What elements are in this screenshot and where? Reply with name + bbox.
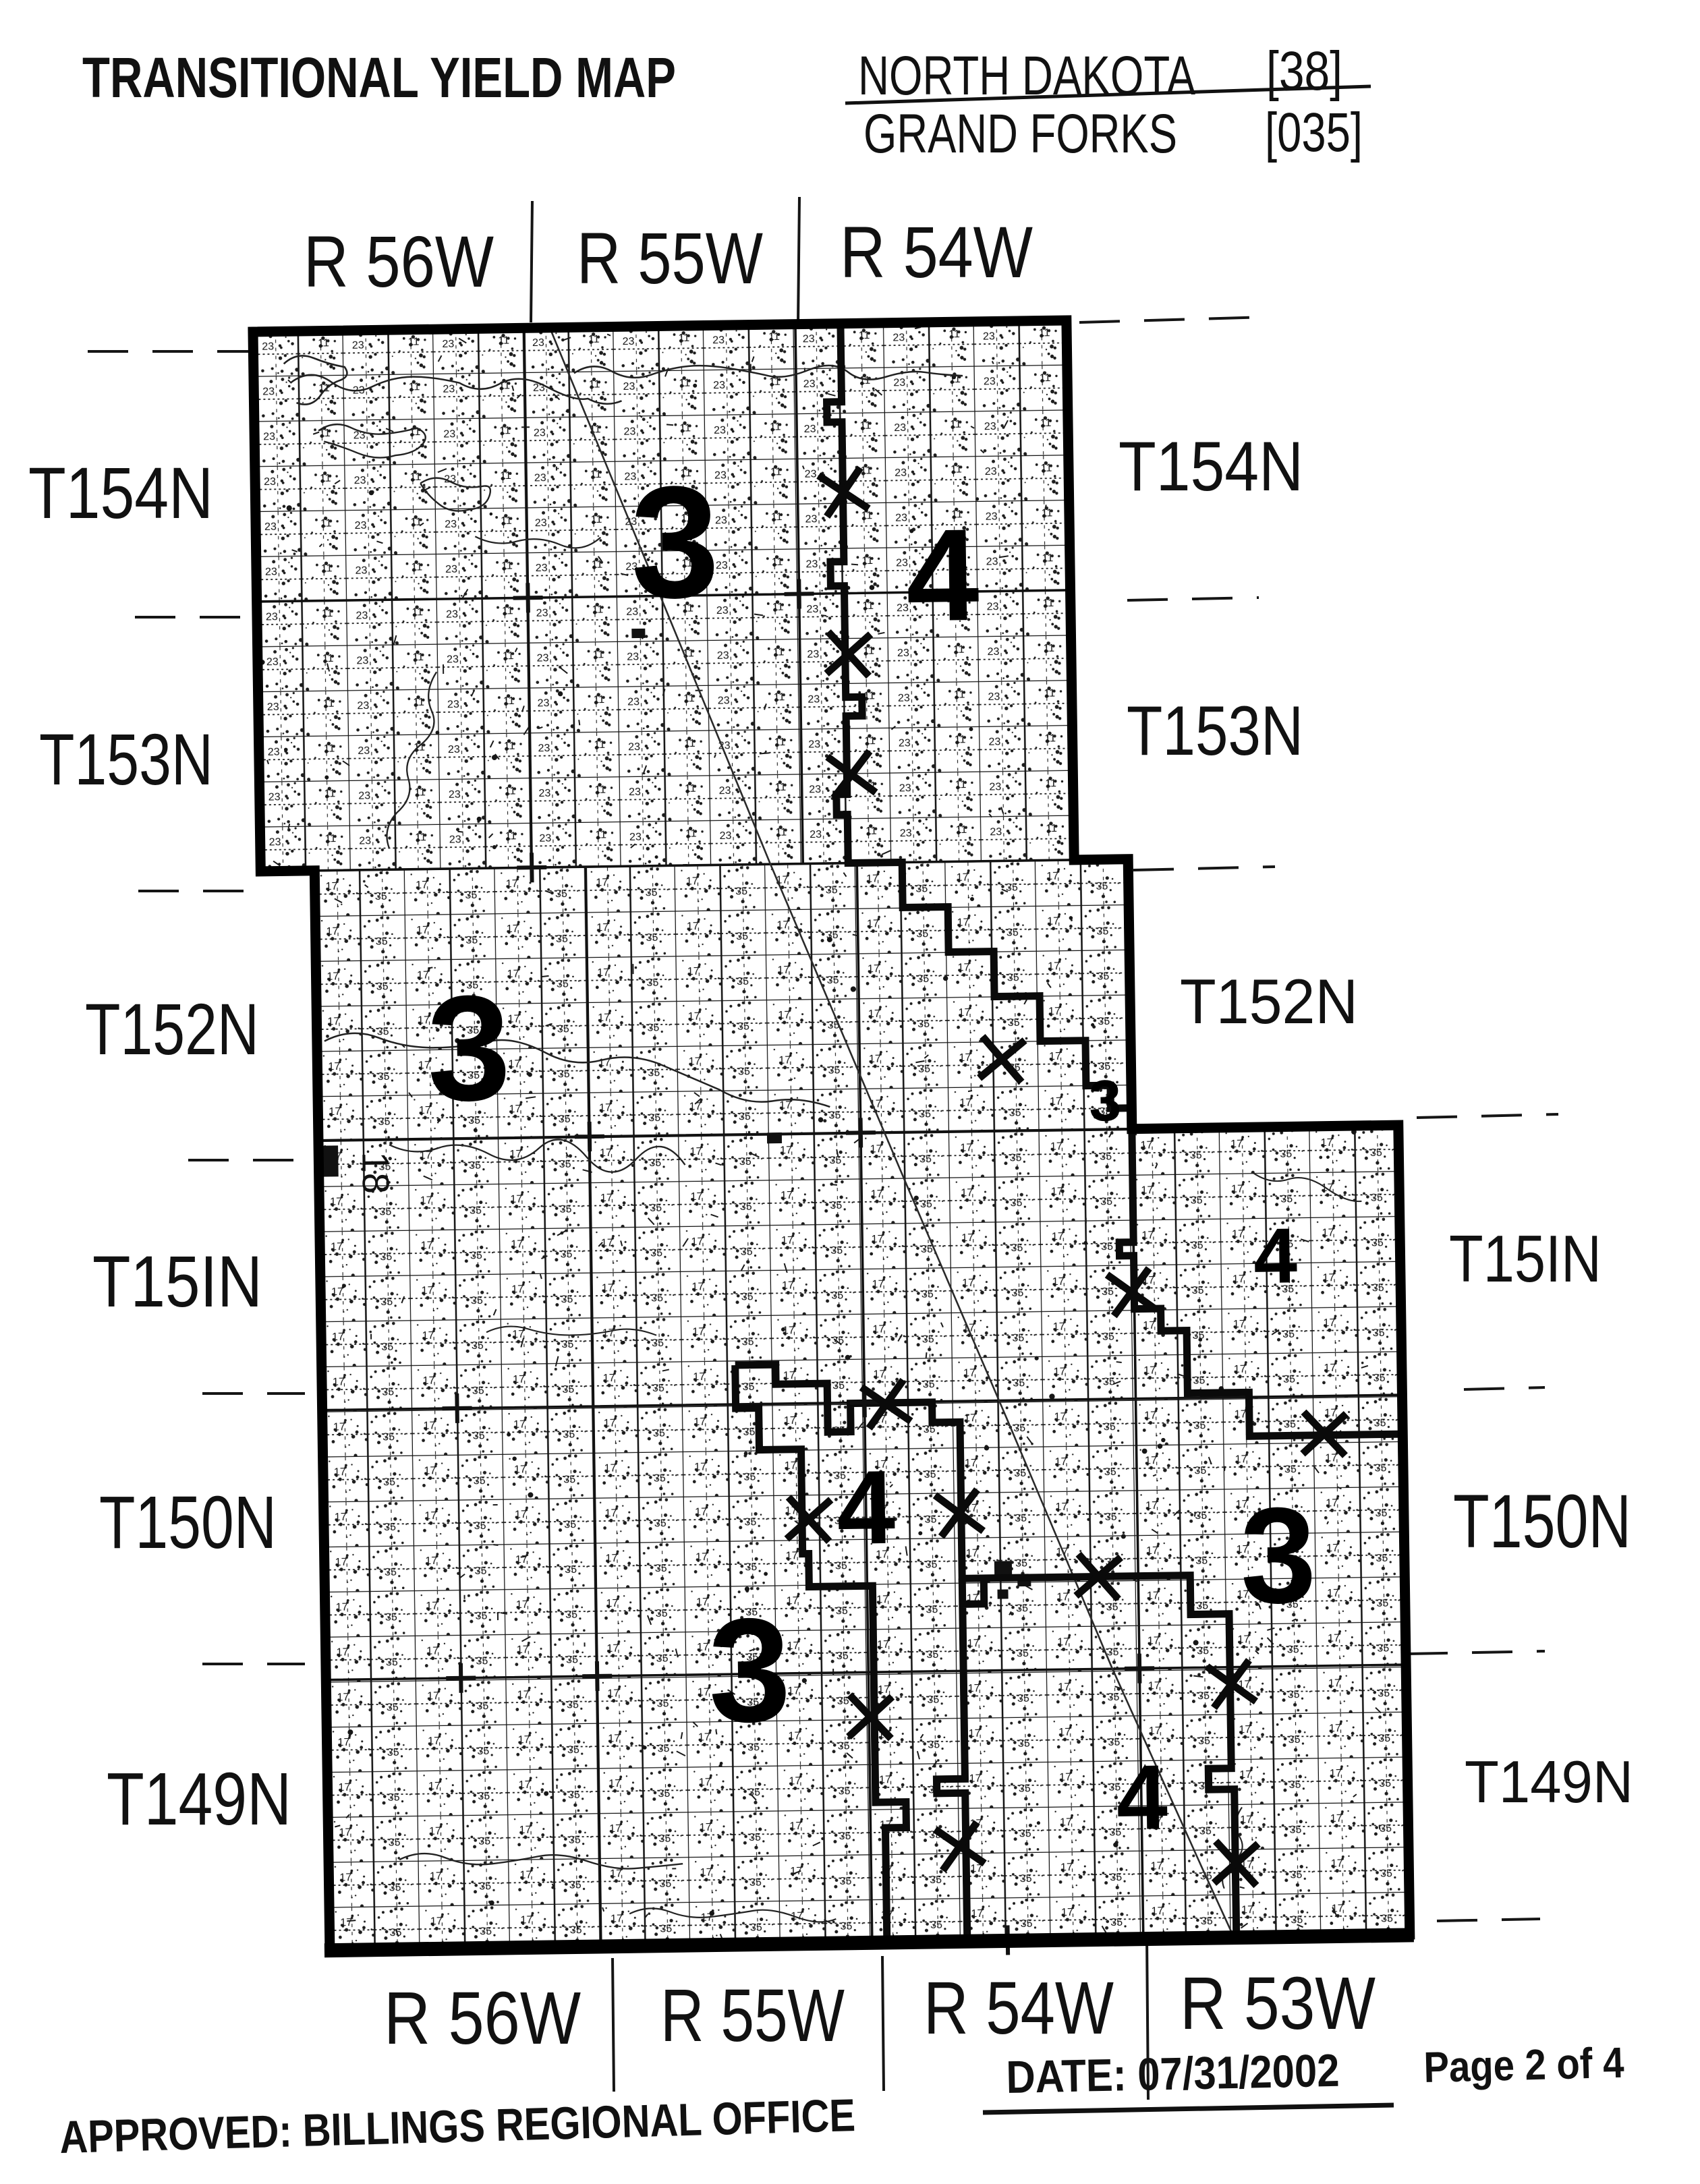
svg-text:T154N: T154N xyxy=(28,452,213,534)
svg-text:3: 3 xyxy=(708,1588,792,1754)
svg-text:T15IN: T15IN xyxy=(1449,1222,1602,1296)
svg-text:T149N: T149N xyxy=(1465,1748,1633,1815)
svg-text:R 54W: R 54W xyxy=(840,211,1033,293)
svg-text:T154N: T154N xyxy=(1118,428,1303,506)
svg-text:3: 3 xyxy=(1239,1478,1317,1632)
svg-text:T152N: T152N xyxy=(85,988,259,1070)
svg-text:Page 2 of 4: Page 2 of 4 xyxy=(1423,2038,1625,2092)
svg-text:[035]: [035] xyxy=(1265,102,1363,163)
svg-text:T152N: T152N xyxy=(1180,966,1358,1037)
svg-text:4: 4 xyxy=(1253,1211,1297,1300)
svg-text:T153N: T153N xyxy=(1127,692,1303,770)
svg-text:18: 18 xyxy=(354,1151,397,1194)
svg-text:[38]: [38] xyxy=(1266,40,1342,102)
svg-text:R 56W: R 56W xyxy=(304,221,494,302)
svg-text:3: 3 xyxy=(426,965,512,1133)
svg-text:T153N: T153N xyxy=(39,718,213,800)
svg-text:R 54W: R 54W xyxy=(924,1967,1114,2050)
svg-text:R 53W: R 53W xyxy=(1180,1962,1376,2045)
svg-text:T150N: T150N xyxy=(1453,1479,1631,1563)
svg-text:R 55W: R 55W xyxy=(660,1974,845,2057)
svg-text:GRAND FORKS: GRAND FORKS xyxy=(863,103,1177,165)
svg-text:R 55W: R 55W xyxy=(577,217,763,299)
svg-text:DATE: 07/31/2002: DATE: 07/31/2002 xyxy=(1006,2045,1340,2103)
svg-text:4: 4 xyxy=(836,1449,896,1566)
svg-text:4: 4 xyxy=(1116,1746,1168,1849)
svg-text:T149N: T149N xyxy=(107,1758,291,1841)
svg-text:TRANSITIONAL YIELD MAP: TRANSITIONAL YIELD MAP xyxy=(82,46,676,109)
svg-text:3: 3 xyxy=(1089,1068,1122,1134)
svg-text:R 56W: R 56W xyxy=(384,1977,581,2060)
svg-text:T15IN: T15IN xyxy=(92,1240,262,1322)
svg-text:4: 4 xyxy=(905,502,980,650)
svg-text:T150N: T150N xyxy=(99,1481,277,1564)
svg-text:3: 3 xyxy=(629,453,720,632)
